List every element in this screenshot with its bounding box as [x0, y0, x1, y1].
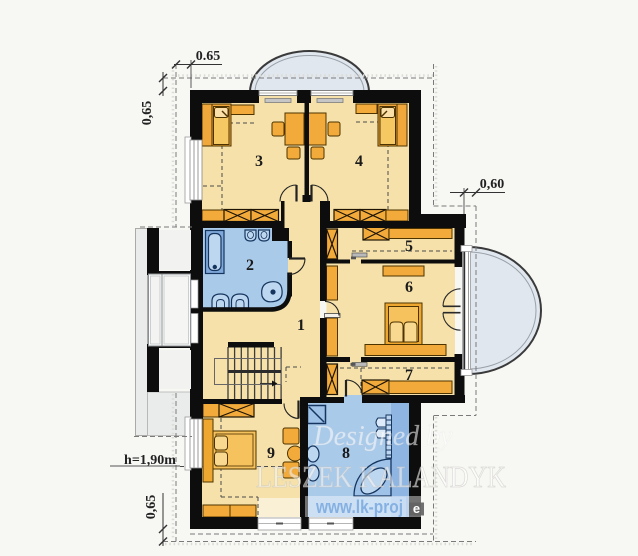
svg-text:Designed by: Designed by	[312, 421, 453, 452]
svg-text:0.65: 0.65	[196, 49, 221, 64]
svg-text:2: 2	[246, 257, 254, 274]
svg-text:LESZEK KALANDYK: LESZEK KALANDYK	[256, 459, 507, 494]
svg-text:e: e	[413, 501, 420, 516]
svg-text:0,65: 0,65	[144, 495, 159, 520]
svg-text:1: 1	[297, 317, 305, 334]
svg-text:4: 4	[355, 153, 363, 170]
svg-text:3: 3	[255, 153, 263, 170]
svg-text:0,60: 0,60	[480, 177, 505, 192]
svg-text:5: 5	[405, 238, 413, 255]
svg-text:6: 6	[405, 279, 413, 296]
svg-text:0,65: 0,65	[140, 101, 155, 126]
svg-text:7: 7	[405, 367, 413, 384]
svg-text:www.lk-proj: www.lk-proj	[315, 497, 403, 517]
